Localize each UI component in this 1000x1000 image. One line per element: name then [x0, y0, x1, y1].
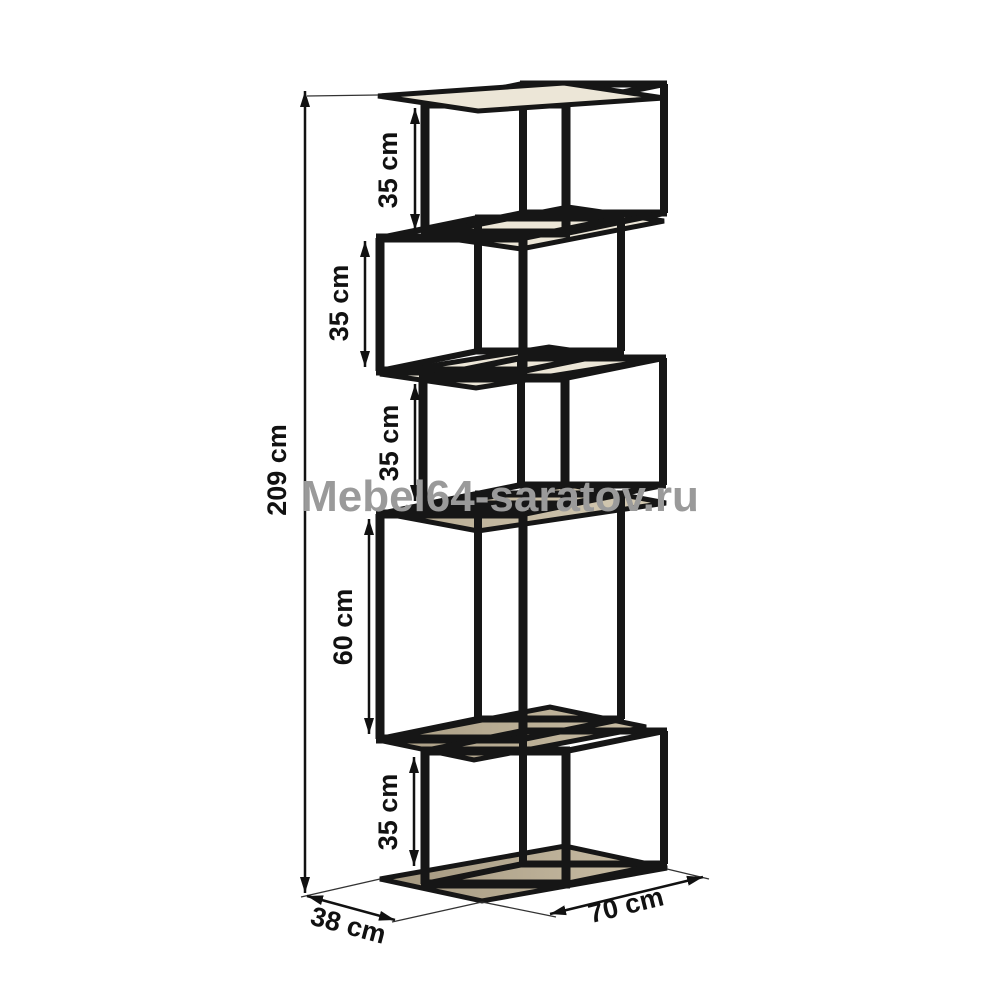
dim-section-3-label: 35 cm [374, 405, 404, 482]
dimension-extension-line [307, 95, 378, 96]
dimension-extension-line [392, 902, 482, 922]
dim-section-5-label: 35 cm [373, 774, 403, 851]
dim-width-label: 70 cm [585, 881, 667, 929]
dim-total-height-label: 209 cm [262, 424, 292, 516]
dim-section-2-label: 35 cm [324, 265, 354, 342]
dimension-extension-line [482, 902, 556, 917]
dim-section-4-label: 60 cm [328, 589, 358, 666]
product-dimension-diagram: 209 cm35 cm35 cm35 cm60 cm35 cm38 cm70 c… [0, 0, 1000, 1000]
shelving-unit-drawing: 209 cm35 cm35 cm35 cm60 cm35 cm38 cm70 c… [0, 0, 1000, 1000]
dimension-extension-line [301, 879, 380, 897]
dim-section-1-label: 35 cm [373, 132, 403, 209]
